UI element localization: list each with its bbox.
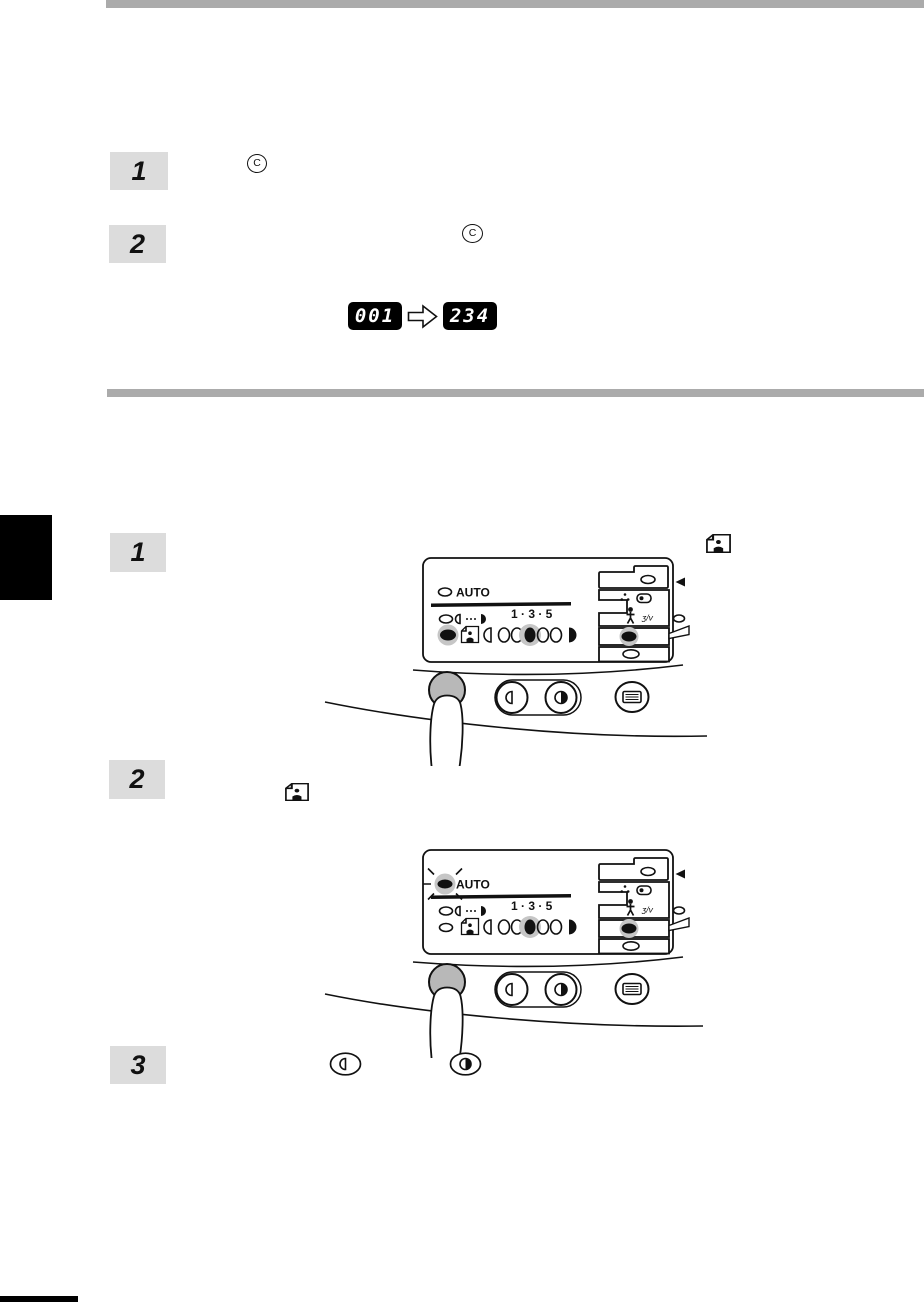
clear-key-letter: C	[469, 228, 477, 239]
clear-key-icon: C	[462, 224, 483, 243]
photo-mode-icon	[285, 783, 309, 801]
finger	[430, 696, 462, 767]
step-number-box: 1	[110, 152, 168, 190]
finger	[430, 988, 462, 1059]
auto-label: AUTO	[456, 586, 490, 600]
copy-counter-display-after: 234	[443, 302, 497, 330]
left-arrow-icon	[676, 578, 686, 587]
step-number: 3	[130, 1050, 145, 1081]
control-panel-diagram-step1: AUTO 1 · 3 · 5	[323, 548, 837, 766]
transition-arrow-icon	[407, 304, 438, 329]
step-number: 2	[130, 229, 145, 260]
copy-quantity-display-key	[616, 682, 649, 712]
auto-label: AUTO	[456, 878, 490, 892]
photo-mode-icon	[462, 919, 479, 935]
manual-page: 1 C 2 C 001 234 1 A	[0, 0, 924, 1305]
step-number: 2	[129, 764, 144, 795]
copy-quantity-display-key	[616, 974, 649, 1004]
mode-symbol: ʒ/v	[641, 905, 654, 915]
control-panel-diagram-step2: AUTO 1 · 3 · 5	[323, 840, 837, 1058]
mode-symbol: ʒ/v	[641, 613, 654, 623]
photo-mode-icon	[462, 627, 479, 643]
footer-rule	[0, 1296, 78, 1302]
exposure-scale-label: 1 · 3 · 5	[511, 607, 553, 621]
top-accent-bar	[106, 0, 924, 8]
step-number: 1	[131, 156, 146, 187]
step-number-box: 2	[109, 225, 166, 263]
counter-value: 234	[450, 305, 490, 327]
clear-key-letter: C	[253, 158, 261, 169]
copy-counter-display-before: 001	[348, 302, 402, 330]
selected-type-indicator	[622, 632, 637, 642]
step-number-box: 2	[109, 760, 165, 799]
counter-value: 001	[355, 305, 395, 327]
left-arrow-icon	[676, 870, 686, 879]
section-divider-bar	[107, 389, 924, 397]
exposure-scale-label: 1 · 3 · 5	[511, 899, 553, 913]
darker-key-icon	[449, 1052, 482, 1076]
chapter-tab	[0, 515, 52, 600]
lighter-key-icon	[329, 1052, 362, 1076]
clear-key-icon: C	[247, 154, 267, 173]
step-number-box: 1	[110, 533, 166, 572]
exposure-adjust-keys	[495, 972, 581, 1007]
step-number: 1	[130, 537, 145, 568]
original-type-key-stack: ʒ/v	[599, 566, 689, 662]
step-number-box: 3	[110, 1046, 166, 1084]
selected-type-indicator	[622, 924, 637, 934]
original-type-key-stack: ʒ/v	[599, 858, 689, 954]
exposure-adjust-keys	[495, 680, 581, 715]
photo-indicator-lit	[438, 625, 459, 646]
